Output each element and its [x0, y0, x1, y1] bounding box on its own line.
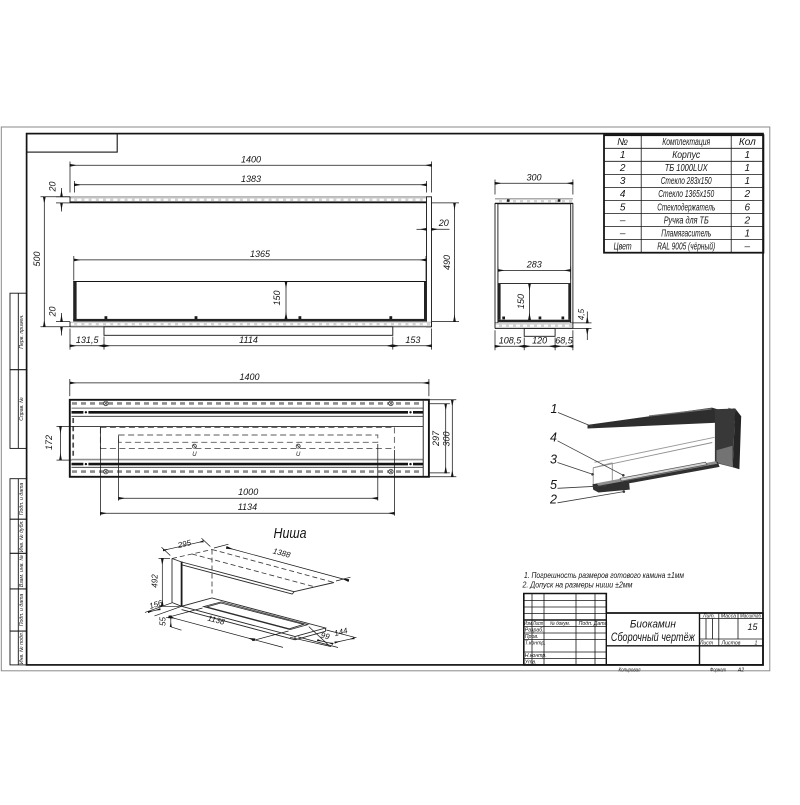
svg-text:4: 4 — [550, 431, 557, 445]
svg-text:Кол: Кол — [739, 137, 756, 148]
svg-text:Изм.Лист: Изм.Лист — [524, 621, 544, 627]
svg-text:490: 490 — [442, 255, 452, 270]
svg-text:1: 1 — [745, 150, 751, 161]
svg-text:68,5: 68,5 — [555, 335, 574, 345]
svg-text:Формат: Формат — [710, 668, 727, 674]
svg-text:Пламягаситель: Пламягаситель — [661, 228, 711, 239]
svg-text:ТБ 1000LUX: ТБ 1000LUX — [665, 163, 708, 174]
svg-text:120: 120 — [532, 335, 547, 345]
svg-text:131,5: 131,5 — [76, 335, 100, 345]
svg-text:Стекло 283х150: Стекло 283х150 — [661, 176, 712, 187]
svg-text:1: 1 — [620, 150, 626, 161]
svg-text:1114: 1114 — [239, 335, 258, 345]
svg-text:Перв. примен.: Перв. примен. — [19, 314, 25, 348]
svg-text:4,5: 4,5 — [577, 308, 586, 320]
svg-text:Справ. №: Справ. № — [19, 397, 25, 421]
svg-text:108,5: 108,5 — [499, 335, 523, 345]
svg-text:4: 4 — [620, 189, 626, 200]
svg-text:U: U — [296, 452, 301, 458]
svg-text:20: 20 — [47, 181, 57, 192]
svg-text:Утв.: Утв. — [525, 660, 537, 666]
svg-text:300: 300 — [441, 431, 451, 446]
svg-text:1134: 1134 — [238, 502, 257, 512]
svg-text:Подп.: Подп. — [579, 621, 593, 627]
svg-text:283: 283 — [526, 260, 542, 270]
svg-text:15: 15 — [747, 622, 758, 632]
svg-text:1: 1 — [551, 402, 558, 416]
svg-text:20: 20 — [438, 218, 449, 228]
svg-text:1383: 1383 — [241, 174, 261, 184]
svg-text:U: U — [192, 452, 197, 458]
svg-text:Инв. № подл.: Инв. № подл. — [19, 632, 25, 664]
svg-text:Инв. № дубл.: Инв. № дубл. — [19, 520, 25, 552]
svg-text:Взам. инв. №: Взам. инв. № — [19, 555, 25, 587]
svg-text:20: 20 — [47, 306, 57, 317]
svg-text:Ниша: Ниша — [274, 525, 307, 542]
svg-text:Подп. и дата: Подп. и дата — [19, 594, 25, 627]
svg-text:1. Погрешность размеров готово: 1. Погрешность размеров готового камина … — [524, 571, 684, 580]
svg-text:Лит.: Лит. — [702, 613, 715, 619]
svg-text:Копировал: Копировал — [619, 668, 641, 674]
svg-text:RAL 9005 (чёрный): RAL 9005 (чёрный) — [657, 241, 715, 252]
svg-text:2: 2 — [549, 493, 557, 507]
svg-text:5: 5 — [550, 478, 557, 492]
svg-text:Комплектация: Комплектация — [662, 137, 710, 148]
svg-text:Цвет: Цвет — [614, 241, 632, 252]
svg-text:№ докум.: № докум. — [550, 621, 570, 627]
svg-text:1400: 1400 — [241, 155, 261, 165]
svg-text:Сборочный чертёж: Сборочный чертёж — [611, 630, 696, 644]
svg-text:Корпус: Корпус — [672, 150, 700, 161]
svg-text:1: 1 — [745, 176, 751, 187]
svg-text:№: № — [617, 137, 628, 148]
svg-text:Масштаб: Масштаб — [740, 613, 762, 619]
svg-text:А2: А2 — [737, 668, 744, 674]
svg-text:Н.контр.: Н.контр. — [525, 653, 547, 659]
svg-text:Подп. и дата: Подп. и дата — [19, 483, 25, 516]
svg-text:Стекло 1365х150: Стекло 1365х150 — [658, 189, 714, 200]
svg-text:2. Допуск на размеры ниши ±2мм: 2. Допуск на размеры ниши ±2мм — [522, 581, 633, 590]
svg-text:1: 1 — [745, 228, 751, 239]
svg-text:297: 297 — [431, 430, 441, 447]
svg-text:Пров.: Пров. — [525, 634, 539, 640]
svg-text:–: – — [619, 228, 626, 239]
svg-text:153: 153 — [405, 335, 420, 345]
svg-text:Биокамин: Биокамин — [630, 619, 676, 631]
svg-text:1365: 1365 — [250, 249, 271, 259]
svg-text:Ручка для ТБ: Ручка для ТБ — [664, 215, 709, 226]
svg-text:Разраб.: Разраб. — [525, 628, 544, 634]
svg-text:492: 492 — [151, 574, 160, 588]
svg-text:–: – — [744, 241, 751, 252]
svg-text:2: 2 — [619, 163, 626, 174]
svg-text:150: 150 — [516, 294, 526, 309]
svg-text:2: 2 — [744, 215, 751, 226]
svg-text:1400: 1400 — [239, 372, 259, 382]
svg-text:Листов: Листов — [721, 640, 741, 646]
svg-text:3: 3 — [620, 176, 626, 187]
svg-text:6: 6 — [745, 202, 751, 213]
svg-text:500: 500 — [32, 251, 42, 266]
svg-text:300: 300 — [526, 173, 541, 183]
svg-text:2: 2 — [744, 189, 751, 200]
svg-text:1: 1 — [755, 640, 758, 646]
svg-text:172: 172 — [44, 435, 54, 450]
svg-text:3: 3 — [550, 452, 557, 466]
svg-text:–: – — [619, 215, 626, 226]
svg-text:Стеклодержатель: Стеклодержатель — [657, 202, 715, 213]
svg-text:1000: 1000 — [238, 487, 258, 497]
svg-text:Т.контр.: Т.контр. — [525, 641, 546, 647]
svg-text:Масса: Масса — [721, 613, 736, 619]
svg-text:Дата: Дата — [593, 621, 608, 627]
svg-text:Лист: Лист — [699, 640, 714, 646]
svg-text:150: 150 — [272, 290, 282, 305]
svg-text:5: 5 — [620, 202, 626, 213]
svg-text:1: 1 — [745, 163, 751, 174]
